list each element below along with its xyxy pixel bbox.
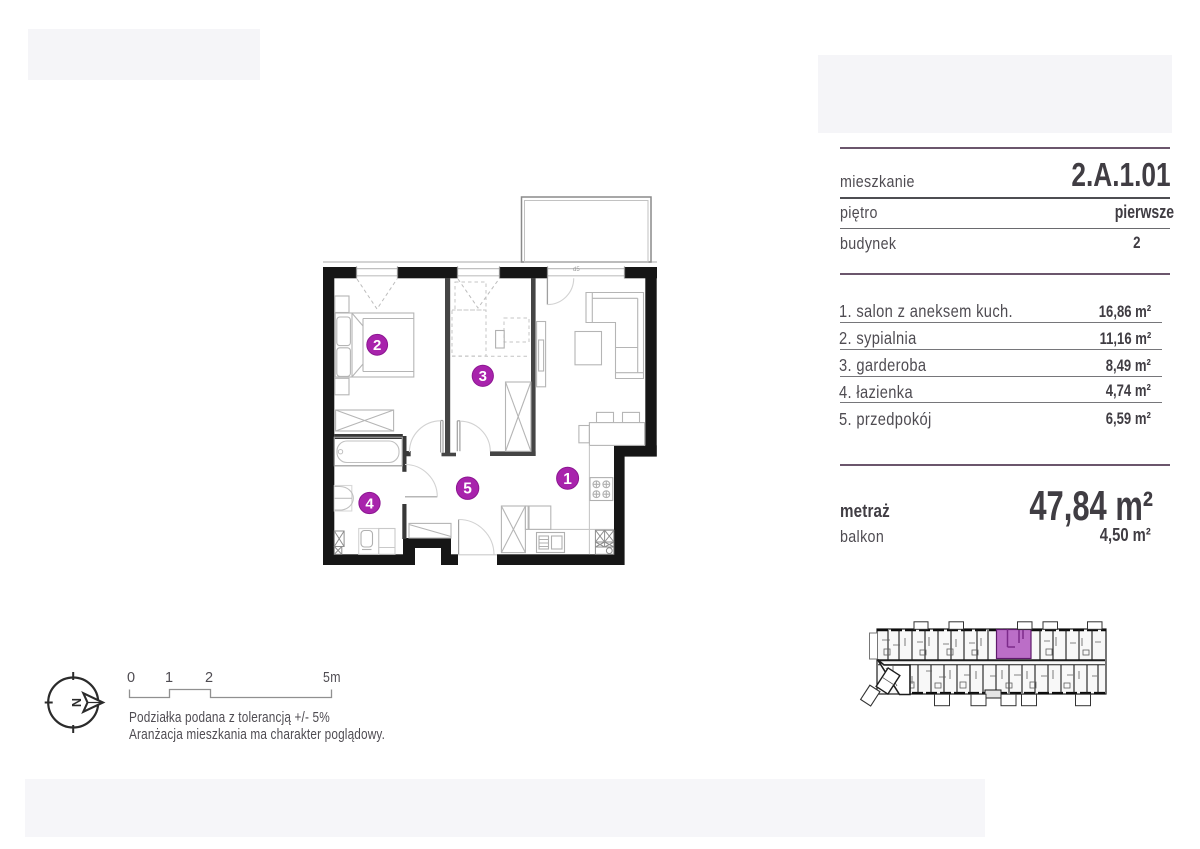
svg-text:1: 1 [563, 471, 572, 488]
svg-text:N: N [69, 698, 83, 707]
svg-text:3: 3 [479, 368, 487, 385]
svg-text:4: 4 [365, 495, 374, 512]
svg-text:d5: d5 [573, 267, 580, 273]
svg-text:5: 5 [463, 481, 472, 498]
svg-text:2: 2 [373, 337, 381, 354]
